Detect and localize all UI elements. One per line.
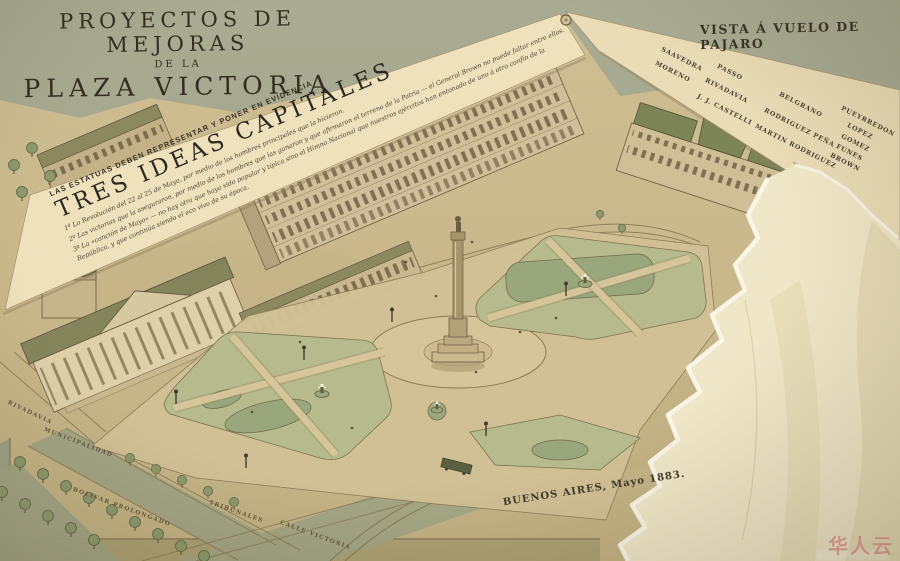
view-label: VISTA Á VUELO DE PAJARO — [700, 18, 900, 52]
lithograph-plate: PROYECTOS DE MEJORAS DE LA PLAZA VICTORI… — [0, 0, 900, 561]
watermark: 华人云 — [828, 530, 894, 559]
title-line-1: PROYECTOS DE MEJORAS — [9, 6, 346, 59]
